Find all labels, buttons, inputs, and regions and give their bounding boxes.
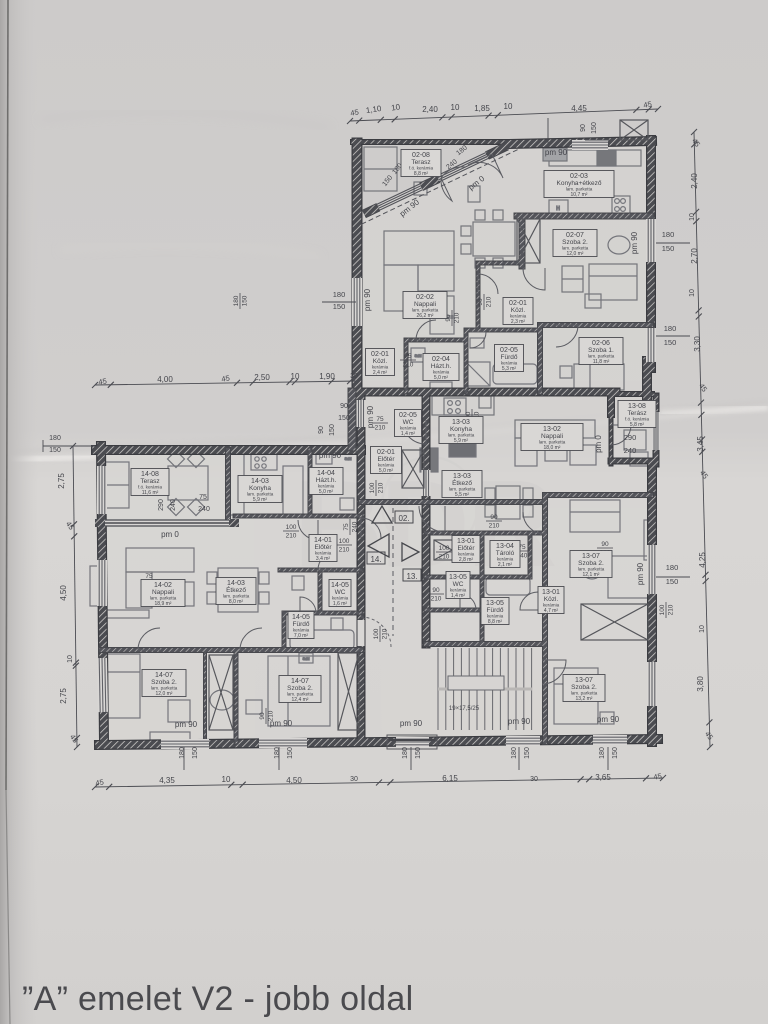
- svg-text:14-07: 14-07: [155, 672, 173, 679]
- svg-text:290: 290: [624, 433, 637, 442]
- svg-text:1,4 m²: 1,4 m²: [401, 431, 416, 437]
- svg-text:210: 210: [431, 596, 442, 603]
- svg-text:5,9 m²: 5,9 m²: [253, 497, 268, 503]
- svg-text:2,50: 2,50: [254, 373, 270, 382]
- svg-text:kerámia: kerámia: [501, 361, 518, 366]
- svg-text:1,85: 1,85: [474, 104, 490, 113]
- svg-text:14-07: 14-07: [291, 678, 309, 685]
- svg-text:150: 150: [338, 415, 350, 422]
- svg-text:pm 90: pm 90: [363, 288, 372, 311]
- svg-text:1,4 m²: 1,4 m²: [451, 593, 466, 599]
- svg-text:2,70: 2,70: [690, 248, 699, 264]
- svg-text:12,1 m²: 12,1 m²: [583, 572, 600, 578]
- svg-text:10: 10: [699, 625, 706, 633]
- svg-text:13-05: 13-05: [486, 600, 504, 607]
- svg-text:lam. parketta: lam. parketta: [571, 691, 598, 696]
- svg-text:180: 180: [274, 747, 281, 759]
- svg-text:lam. parketta: lam. parketta: [150, 596, 177, 601]
- svg-text:13-08: 13-08: [628, 403, 646, 410]
- svg-text:02-05: 02-05: [399, 412, 417, 419]
- svg-text:lam. parketta: lam. parketta: [449, 487, 476, 492]
- svg-text:lam. parketta: lam. parketta: [287, 692, 314, 697]
- svg-text:8,8 m²: 8,8 m²: [488, 619, 503, 625]
- svg-text:150: 150: [192, 747, 199, 759]
- svg-text:90: 90: [340, 403, 348, 410]
- svg-text:14-08: 14-08: [141, 471, 159, 478]
- svg-text:150: 150: [415, 747, 422, 759]
- svg-text:pm 90: pm 90: [319, 451, 342, 460]
- svg-text:lam. parketta: lam. parketta: [566, 187, 593, 192]
- svg-text:210: 210: [668, 604, 675, 615]
- svg-text:90: 90: [318, 426, 325, 434]
- svg-text:f.ö. kerámia: f.ö. kerámia: [138, 485, 162, 490]
- svg-text:210: 210: [375, 425, 386, 432]
- svg-text:2,8 m²: 2,8 m²: [459, 557, 474, 563]
- svg-text:290: 290: [158, 499, 165, 511]
- svg-text:150: 150: [524, 747, 531, 759]
- svg-text:4,00: 4,00: [157, 375, 173, 384]
- svg-text:3,30: 3,30: [693, 336, 702, 352]
- svg-text:02-06: 02-06: [592, 340, 610, 347]
- svg-text:10: 10: [689, 289, 696, 297]
- svg-text:02-05: 02-05: [500, 347, 518, 354]
- svg-text:90: 90: [432, 587, 440, 594]
- svg-text:kerámia: kerámia: [543, 603, 560, 608]
- svg-text:18,0 m²: 18,0 m²: [544, 445, 561, 451]
- svg-text:f.ö. kerámia: f.ö. kerámia: [409, 166, 433, 171]
- svg-text:kerámia: kerámia: [293, 628, 310, 633]
- svg-text:150: 150: [612, 747, 619, 759]
- svg-text:10: 10: [391, 102, 402, 112]
- svg-text:240: 240: [170, 499, 177, 511]
- svg-text:SzM: SzM: [345, 457, 352, 461]
- svg-text:pm 0: pm 0: [594, 435, 603, 453]
- svg-text:10: 10: [451, 103, 460, 112]
- svg-text:3,65: 3,65: [595, 773, 611, 782]
- svg-text:90: 90: [490, 514, 498, 521]
- svg-text:kerámia: kerámia: [510, 314, 527, 319]
- svg-text:4,35: 4,35: [159, 776, 175, 785]
- svg-text:pm 0: pm 0: [161, 530, 179, 539]
- svg-text:2,40: 2,40: [422, 105, 438, 114]
- svg-text:90: 90: [601, 541, 609, 548]
- svg-text:45: 45: [653, 771, 663, 781]
- svg-text:180: 180: [233, 295, 240, 306]
- svg-text:10: 10: [67, 655, 74, 663]
- svg-text:210: 210: [378, 482, 385, 493]
- svg-text:13-05: 13-05: [449, 574, 467, 581]
- svg-text:19×17,5/25: 19×17,5/25: [449, 706, 480, 712]
- svg-text:14-05: 14-05: [331, 582, 349, 589]
- svg-text:kerámia: kerámia: [372, 365, 389, 370]
- svg-text:180: 180: [662, 230, 675, 239]
- svg-text:240: 240: [352, 521, 359, 532]
- svg-text:13-01: 13-01: [457, 538, 475, 545]
- svg-text:4,7 m²: 4,7 m²: [544, 608, 559, 614]
- svg-text:100: 100: [339, 538, 350, 545]
- svg-text:45: 45: [221, 373, 231, 383]
- svg-text:lam. parketta: lam. parketta: [247, 492, 274, 497]
- svg-text:13-02: 13-02: [543, 426, 561, 433]
- svg-text:90: 90: [580, 124, 587, 132]
- svg-text:210: 210: [382, 628, 389, 639]
- svg-text:6,15: 6,15: [442, 774, 458, 783]
- svg-text:SzM: SzM: [303, 657, 310, 661]
- svg-text:pm 90: pm 90: [400, 719, 423, 728]
- svg-text:10: 10: [504, 102, 513, 111]
- svg-text:180: 180: [666, 563, 679, 572]
- svg-text:02-08: 02-08: [412, 152, 430, 159]
- svg-text:3,45: 3,45: [696, 436, 705, 452]
- svg-text:13-07: 13-07: [582, 553, 600, 560]
- svg-text:150: 150: [329, 424, 336, 436]
- svg-text:180: 180: [179, 747, 186, 759]
- svg-text:180: 180: [49, 435, 61, 442]
- svg-text:75: 75: [376, 416, 384, 423]
- svg-text:pm 90: pm 90: [175, 720, 198, 729]
- svg-text:2,40: 2,40: [690, 173, 699, 189]
- svg-text:13.: 13.: [406, 572, 417, 581]
- svg-text:240: 240: [624, 446, 637, 455]
- svg-text:150: 150: [666, 577, 679, 586]
- svg-text:12,0 m²: 12,0 m²: [156, 691, 173, 697]
- svg-text:75: 75: [199, 494, 207, 501]
- svg-text:02-01: 02-01: [371, 351, 389, 358]
- svg-text:90: 90: [477, 298, 484, 306]
- svg-text:210: 210: [403, 362, 414, 369]
- svg-text:02-02: 02-02: [416, 294, 434, 301]
- svg-text:100: 100: [373, 628, 380, 639]
- svg-text:02-03: 02-03: [570, 173, 588, 180]
- svg-text:02-01: 02-01: [377, 449, 395, 456]
- svg-text:75: 75: [404, 353, 412, 360]
- svg-text:180: 180: [333, 290, 346, 299]
- svg-text:11,6 m²: 11,6 m²: [142, 490, 159, 496]
- svg-text:5,0 m²: 5,0 m²: [319, 489, 334, 495]
- svg-text:lam. parketta: lam. parketta: [223, 594, 250, 599]
- svg-text:4,50: 4,50: [286, 776, 302, 785]
- svg-text:10: 10: [222, 775, 231, 784]
- svg-text:210: 210: [489, 523, 500, 530]
- svg-text:180: 180: [664, 324, 677, 333]
- svg-text:pm 90: pm 90: [630, 231, 639, 254]
- svg-text:12,0 m²: 12,0 m²: [567, 251, 584, 257]
- svg-text:10: 10: [689, 213, 696, 221]
- svg-text:1,6 m²: 1,6 m²: [333, 601, 348, 607]
- svg-text:75: 75: [145, 573, 153, 580]
- svg-text:13-03: 13-03: [452, 419, 470, 426]
- svg-text:12,4 m²: 12,4 m²: [292, 697, 309, 703]
- svg-text:18,9 m²: 18,9 m²: [155, 601, 172, 607]
- svg-text:13-01: 13-01: [542, 589, 560, 596]
- svg-text:8,0 m²: 8,0 m²: [229, 599, 244, 605]
- svg-text:150: 150: [287, 747, 294, 759]
- svg-text:100: 100: [439, 545, 450, 552]
- svg-text:lam. parketta: lam. parketta: [412, 308, 439, 313]
- svg-text:2,75: 2,75: [57, 473, 66, 489]
- svg-text:30: 30: [350, 776, 358, 783]
- svg-text:02-07: 02-07: [566, 232, 584, 239]
- svg-text:SzM: SzM: [415, 354, 422, 358]
- svg-text:4,25: 4,25: [698, 552, 707, 568]
- svg-text:14-05: 14-05: [292, 614, 310, 621]
- svg-text:kerámia: kerámia: [315, 551, 332, 556]
- svg-text:lam. parketta: lam. parketta: [539, 440, 566, 445]
- svg-text:150: 150: [49, 447, 61, 454]
- svg-text:14-04: 14-04: [317, 470, 335, 477]
- svg-text:13-03: 13-03: [453, 473, 471, 480]
- svg-text:2,75: 2,75: [59, 688, 68, 704]
- svg-text:150: 150: [662, 244, 675, 253]
- svg-text:1,90: 1,90: [319, 372, 335, 381]
- svg-text:pm 90: pm 90: [636, 562, 645, 585]
- svg-text:5,3 m²: 5,3 m²: [502, 366, 517, 372]
- svg-text:02-01: 02-01: [509, 300, 527, 307]
- svg-text:kerámia: kerámia: [497, 557, 514, 562]
- svg-text:210: 210: [286, 533, 297, 540]
- svg-text:30: 30: [530, 776, 538, 783]
- svg-text:lam. parketta: lam. parketta: [588, 354, 615, 359]
- svg-text:45: 45: [98, 376, 108, 386]
- svg-text:2,4 m²: 2,4 m²: [373, 370, 388, 376]
- svg-text:2,1 m²: 2,1 m²: [498, 562, 513, 568]
- svg-text:7,0 m²: 7,0 m²: [294, 633, 309, 639]
- svg-text:11,8 m²: 11,8 m²: [593, 359, 610, 365]
- svg-text:14-01: 14-01: [314, 537, 332, 544]
- svg-text:kerámia: kerámia: [400, 426, 417, 431]
- svg-text:kerámia: kerámia: [433, 370, 450, 375]
- svg-text:45: 45: [643, 99, 653, 109]
- svg-text:pm 90: pm 90: [508, 717, 531, 726]
- svg-text:210: 210: [486, 296, 493, 307]
- svg-text:02.: 02.: [398, 514, 409, 523]
- svg-text:90: 90: [259, 712, 266, 720]
- svg-text:14.: 14.: [370, 555, 381, 564]
- svg-text:210: 210: [339, 547, 350, 554]
- svg-text:lam. parketta: lam. parketta: [578, 567, 605, 572]
- svg-text:5,5 m²: 5,5 m²: [455, 492, 470, 498]
- svg-text:210: 210: [268, 710, 275, 721]
- svg-text:lam. parketta: lam. parketta: [562, 246, 589, 251]
- svg-text:13-04: 13-04: [496, 543, 514, 550]
- svg-text:5,0 m²: 5,0 m²: [434, 375, 449, 381]
- svg-text:14-03: 14-03: [251, 478, 269, 485]
- svg-text:150: 150: [591, 122, 598, 134]
- svg-text:13,2 m²: 13,2 m²: [576, 696, 593, 702]
- svg-text:75: 75: [343, 523, 350, 531]
- svg-text:150: 150: [242, 295, 249, 306]
- svg-text:3,80: 3,80: [696, 676, 705, 692]
- svg-text:pm 90: pm 90: [545, 148, 568, 157]
- svg-text:f.ö. kerámia: f.ö. kerámia: [625, 417, 649, 422]
- svg-text:13-07: 13-07: [575, 677, 593, 684]
- svg-text:180: 180: [402, 747, 409, 759]
- svg-text:30: 30: [350, 373, 358, 380]
- svg-text:150: 150: [664, 338, 677, 347]
- svg-text:150: 150: [333, 302, 346, 311]
- svg-text:2,3 m²: 2,3 m²: [511, 319, 526, 325]
- svg-text:kerámia: kerámia: [332, 596, 349, 601]
- svg-text:kerámia: kerámia: [487, 614, 504, 619]
- svg-text:5,8 m²: 5,8 m²: [630, 422, 645, 428]
- svg-text:180: 180: [511, 747, 518, 759]
- svg-text:4,50: 4,50: [59, 585, 68, 601]
- svg-text:10: 10: [291, 372, 300, 381]
- svg-text:45: 45: [95, 777, 105, 787]
- svg-text:210: 210: [439, 554, 450, 561]
- svg-text:kerámia: kerámia: [450, 588, 467, 593]
- svg-text:14-02: 14-02: [154, 582, 172, 589]
- svg-text:02-04: 02-04: [432, 356, 450, 363]
- svg-text:10,7 m²: 10,7 m²: [571, 192, 588, 198]
- svg-text:100: 100: [286, 524, 297, 531]
- svg-text:100: 100: [369, 482, 376, 493]
- svg-text:”A” emelet V2 - jobb oldal: ”A” emelet V2 - jobb oldal: [22, 980, 413, 1018]
- svg-text:H: H: [556, 206, 560, 212]
- svg-text:pm 90: pm 90: [597, 715, 620, 724]
- svg-text:210: 210: [454, 312, 461, 323]
- svg-text:kerámia: kerámia: [318, 484, 335, 489]
- svg-text:lam. parketta: lam. parketta: [151, 686, 178, 691]
- svg-text:26,2 m²: 26,2 m²: [417, 313, 434, 319]
- svg-text:240: 240: [198, 506, 210, 513]
- svg-text:lam. parketta: lam. parketta: [448, 433, 475, 438]
- svg-text:5,0 m²: 5,0 m²: [379, 468, 394, 474]
- svg-text:3,4 m²: 3,4 m²: [316, 556, 331, 562]
- svg-text:45: 45: [350, 107, 360, 117]
- svg-text:5,9 m²: 5,9 m²: [454, 438, 469, 444]
- svg-text:kerámia: kerámia: [378, 463, 395, 468]
- svg-text:kerámia: kerámia: [458, 552, 475, 557]
- svg-text:14-03: 14-03: [227, 580, 245, 587]
- svg-text:180: 180: [599, 747, 606, 759]
- svg-text:8,8 m²: 8,8 m²: [414, 171, 429, 177]
- svg-text:4,45: 4,45: [571, 104, 587, 113]
- svg-text:100: 100: [659, 604, 666, 615]
